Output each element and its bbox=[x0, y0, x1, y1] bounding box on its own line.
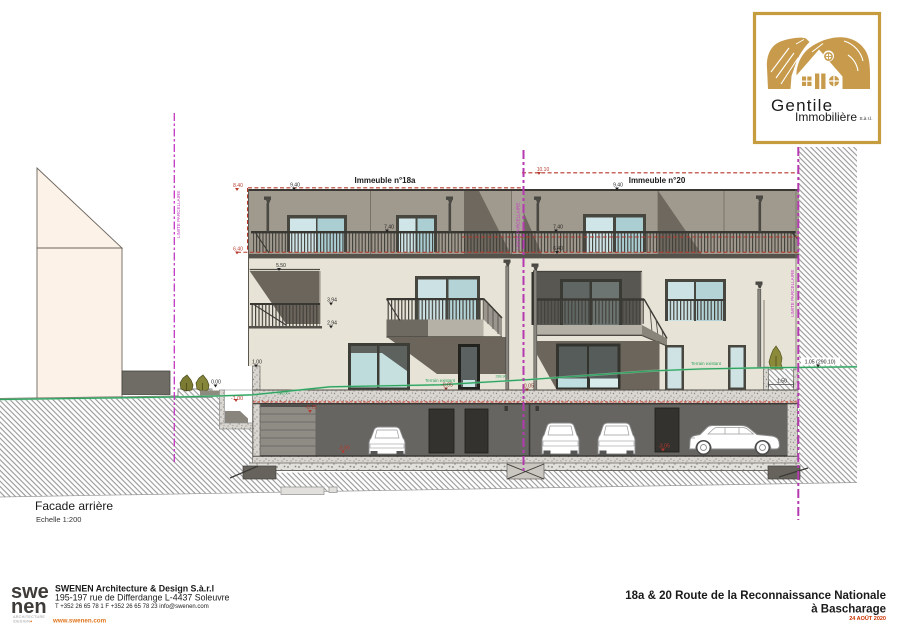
svg-text:18a & 20 Route de la Reconnais: 18a & 20 Route de la Reconnaissance Nati… bbox=[625, 590, 886, 602]
svg-text:288.00: 288.00 bbox=[278, 392, 289, 396]
svg-text:Immeuble n°18a: Immeuble n°18a bbox=[355, 176, 417, 185]
svg-text:1.50: 1.50 bbox=[777, 379, 787, 385]
svg-text:Terrain existant: Terrain existant bbox=[691, 361, 722, 366]
svg-text:à Bascharage: à Bascharage bbox=[811, 604, 886, 616]
svg-text:24 AOÛT 2020: 24 AOÛT 2020 bbox=[849, 615, 886, 622]
svg-text:/DESIGN●: /DESIGN● bbox=[13, 620, 33, 624]
svg-text:ARCHITECTURE: ARCHITECTURE bbox=[13, 615, 45, 619]
svg-text:Facade arrière: Facade arrière bbox=[35, 499, 113, 513]
svg-text:Immobilière: Immobilière bbox=[795, 110, 857, 124]
svg-text:LIMITE PARCELLAIRE: LIMITE PARCELLAIRE bbox=[790, 270, 795, 317]
svg-text:LIMITE PARCELLAIRE: LIMITE PARCELLAIRE bbox=[176, 191, 181, 238]
svg-text:Immeuble n°20: Immeuble n°20 bbox=[629, 176, 686, 185]
svg-text:Echelle 1:200: Echelle 1:200 bbox=[36, 515, 81, 524]
svg-text:288.90: 288.90 bbox=[496, 375, 507, 379]
svg-text:S.à r.l.: S.à r.l. bbox=[860, 116, 873, 121]
svg-text:LIMITE PARCELLAIRE: LIMITE PARCELLAIRE bbox=[516, 203, 521, 250]
svg-text:www.swenen.com: www.swenen.com bbox=[52, 618, 107, 625]
svg-text:T +352 26 65 78 1 F +352 26 65: T +352 26 65 78 1 F +352 26 65 78 23 inf… bbox=[55, 604, 209, 610]
svg-text:Terrain existant: Terrain existant bbox=[425, 378, 456, 383]
svg-text:1.05 (290.10): 1.05 (290.10) bbox=[805, 360, 836, 366]
svg-text:195-197 rue de Differdange L-4: 195-197 rue de Differdange L-4437 Soleuv… bbox=[55, 593, 230, 603]
